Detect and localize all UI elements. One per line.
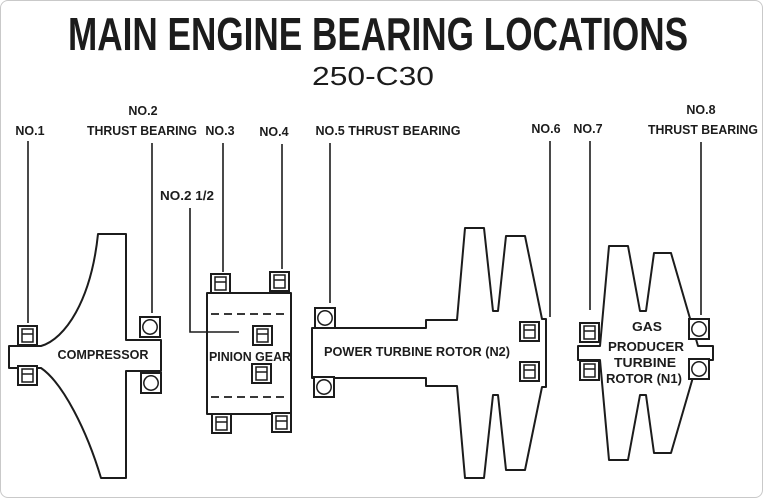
callout-no7: NO.7 — [573, 122, 602, 136]
callout-no2-number: NO.2 — [128, 104, 157, 118]
pinion-gear-label: PINION GEAR — [209, 349, 292, 364]
bearing-no6-upper-roller-icon — [520, 322, 539, 341]
bearing-pinion-lower-left-roller-icon — [212, 414, 231, 433]
page-subtitle: 250-C30 — [312, 61, 434, 91]
gas-producer-label-line3: TURBINE — [614, 355, 676, 370]
power-turbine-label: POWER TURBINE ROTOR (N2) — [324, 344, 510, 359]
gas-producer-label-line1: GAS — [632, 319, 662, 334]
bearing-no6-lower-roller-icon — [520, 362, 539, 381]
callout-no8-thrust: THRUST BEARING — [648, 123, 758, 137]
compressor-label: COMPRESSOR — [58, 347, 150, 362]
gas-producer-label-line4: ROTOR (N1) — [606, 371, 682, 386]
bearing-no1-lower-roller-icon — [18, 366, 37, 385]
engine-bearing-diagram-page: MAIN ENGINE BEARING LOCATIONS 250-C30 NO… — [0, 0, 763, 498]
callout-no8-number: NO.8 — [686, 103, 715, 117]
bearing-no5-upper-ball-icon — [315, 308, 335, 328]
bearing-location-diagram: MAIN ENGINE BEARING LOCATIONS 250-C30 NO… — [1, 1, 763, 498]
page-title: MAIN ENGINE BEARING LOCATIONS — [68, 8, 688, 60]
bearing-no3-roller-icon — [211, 274, 230, 293]
gas-producer-label-line2: PRODUCER — [608, 339, 685, 354]
callout-no4: NO.4 — [259, 125, 288, 139]
bearing-no5-lower-ball-icon — [314, 377, 334, 397]
bearing-no7-lower-roller-icon — [580, 361, 599, 380]
bearing-no2-lower-ball-icon — [141, 373, 161, 393]
bearing-no8-upper-ball-icon — [689, 319, 709, 339]
callout-no2-half: NO.2 1/2 — [160, 189, 214, 203]
bearing-no7-upper-roller-icon — [580, 323, 599, 342]
bearing-no2-half-lower-roller-icon — [252, 364, 271, 383]
bearing-no2-half-upper-roller-icon — [253, 326, 272, 345]
bearing-no4-roller-icon — [270, 272, 289, 291]
bearing-pinion-lower-right-roller-icon — [272, 413, 291, 432]
bearing-no2-upper-ball-icon — [140, 317, 160, 337]
callout-no3: NO.3 — [205, 124, 234, 138]
bearing-no8-lower-ball-icon — [689, 359, 709, 379]
callout-no6: NO.6 — [531, 122, 560, 136]
callout-no2-thrust: THRUST BEARING — [87, 124, 197, 138]
callout-no5: NO.5 THRUST BEARING — [316, 124, 461, 138]
callout-no1: NO.1 — [15, 124, 44, 138]
bearing-no1-upper-roller-icon — [18, 326, 37, 345]
